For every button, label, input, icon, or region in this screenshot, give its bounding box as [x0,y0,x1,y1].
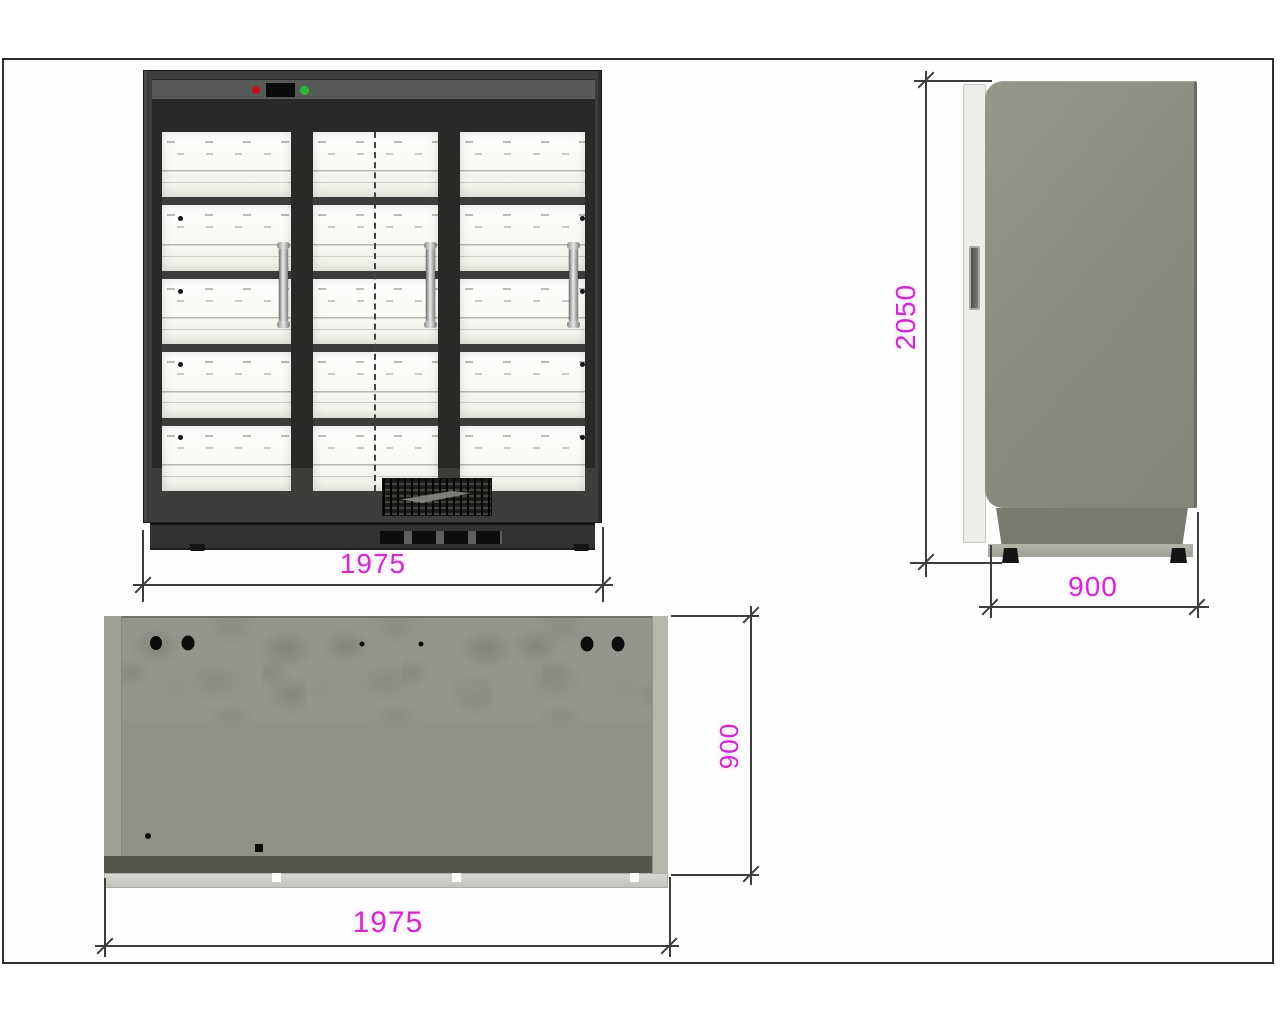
cabinet-foot [574,544,589,551]
front-view [143,70,602,555]
shelf-cell [460,279,585,344]
hinge-dot [580,216,585,221]
ventilation-grille [382,478,492,516]
hinge-dot [178,362,183,367]
flange-notch [630,873,639,882]
controller-display [266,83,295,97]
side-view-foot [1170,548,1187,563]
side-depth-dimension-label: 900 [1043,572,1143,602]
dimension-line [133,584,613,586]
cabinet-plinth [150,523,595,550]
dimension-line [95,945,679,947]
extension-line [602,527,604,602]
extension-line [671,874,759,876]
hinge-dot [178,289,183,294]
door-handle [279,247,288,323]
plan-depth-dimension-label: 900 [714,703,744,789]
side-height-dimension-label: 2050 [891,257,921,377]
front-width-dimension-label: 1975 [303,549,443,579]
mounting-hole [182,636,195,651]
dimension-line [750,606,752,885]
mounting-hole [581,637,594,652]
extension-line [1197,512,1199,618]
door-handle [569,247,578,323]
extension-line [142,530,144,602]
plan-view [104,616,668,888]
mounting-hole [612,637,625,652]
side-view-handle [969,246,980,310]
plan-left-edge [104,616,122,873]
grille-highlight [401,491,471,503]
flange-notch [452,873,461,882]
hinge-dot [580,435,585,440]
hinge-dot [178,216,183,221]
plan-width-dimension-label: 1975 [318,908,458,938]
mounting-hole [419,642,424,647]
door-split-line [374,132,376,491]
plan-base-flange [104,873,668,888]
plan-right-edge [652,616,668,873]
green-indicator-icon [300,86,309,95]
mounting-hole [255,844,263,852]
cabinet-foot [190,544,205,551]
dimension-line [925,71,927,577]
mounting-hole [145,833,151,839]
drawing-canvas: 1975 2050 900 [0,0,1280,1024]
plan-rear-panel [122,721,652,856]
side-view-base-strip [988,544,1193,557]
plan-bottom-strip [104,856,652,873]
cabinet-body [143,70,602,523]
cabinet-header-bar [152,79,595,100]
hinge-dot [580,289,585,294]
hinge-dot [178,435,183,440]
shelf-cell [460,132,585,197]
door-area [152,99,595,468]
mounting-hole [360,642,365,647]
side-view-foot [1002,548,1019,563]
side-view-base [996,508,1188,546]
door-glass-3 [460,132,585,491]
mounting-hole [150,636,162,650]
shelf-cell [162,132,291,197]
side-view-door-edge [963,84,986,543]
door-handle [426,247,435,323]
dimension-line [979,606,1209,608]
shelf-cell [460,205,585,270]
extension-line [671,615,759,617]
shelf-cell [460,352,585,417]
flange-notch [272,873,281,882]
side-view-panel [985,81,1197,508]
hinge-dot [580,362,585,367]
plinth-vent-slots [380,531,502,544]
plan-galvanized-panel [122,616,652,721]
red-indicator-icon [252,86,260,94]
